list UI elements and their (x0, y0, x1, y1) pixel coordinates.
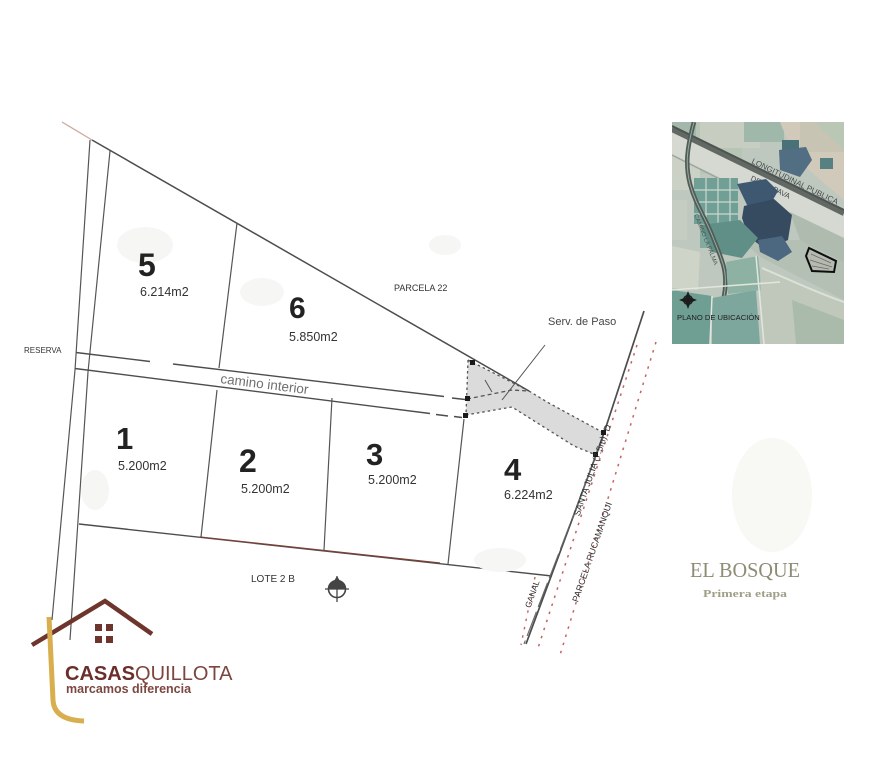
svg-text:EL BOSQUE: EL BOSQUE (690, 558, 800, 582)
svg-text:6: 6 (289, 292, 306, 325)
svg-text:PARCELA 22: PARCELA 22 (394, 283, 447, 293)
svg-text:6.224m2: 6.224m2 (504, 488, 553, 502)
svg-text:6.214m2: 6.214m2 (140, 285, 189, 299)
svg-text:5.850m2: 5.850m2 (289, 330, 338, 344)
svg-text:5.200m2: 5.200m2 (241, 482, 290, 496)
svg-text:2: 2 (239, 443, 257, 479)
svg-text:3: 3 (366, 437, 383, 472)
svg-text:4: 4 (504, 452, 522, 487)
svg-text:5: 5 (138, 247, 156, 283)
svg-text:5.200m2: 5.200m2 (118, 459, 167, 473)
svg-text:LOTE 2 B: LOTE 2 B (251, 574, 295, 585)
svg-text:Serv. de Paso: Serv. de Paso (548, 316, 616, 328)
svg-text:5.200m2: 5.200m2 (368, 473, 417, 487)
svg-text:Primera etapa: Primera etapa (703, 589, 787, 600)
svg-text:RESERVA: RESERVA (24, 346, 62, 355)
svg-text:1: 1 (116, 421, 133, 456)
svg-text:marcamos diferencia: marcamos diferencia (66, 682, 192, 696)
svg-text:PLANO DE UBICACIÓN: PLANO DE UBICACIÓN (677, 313, 760, 322)
